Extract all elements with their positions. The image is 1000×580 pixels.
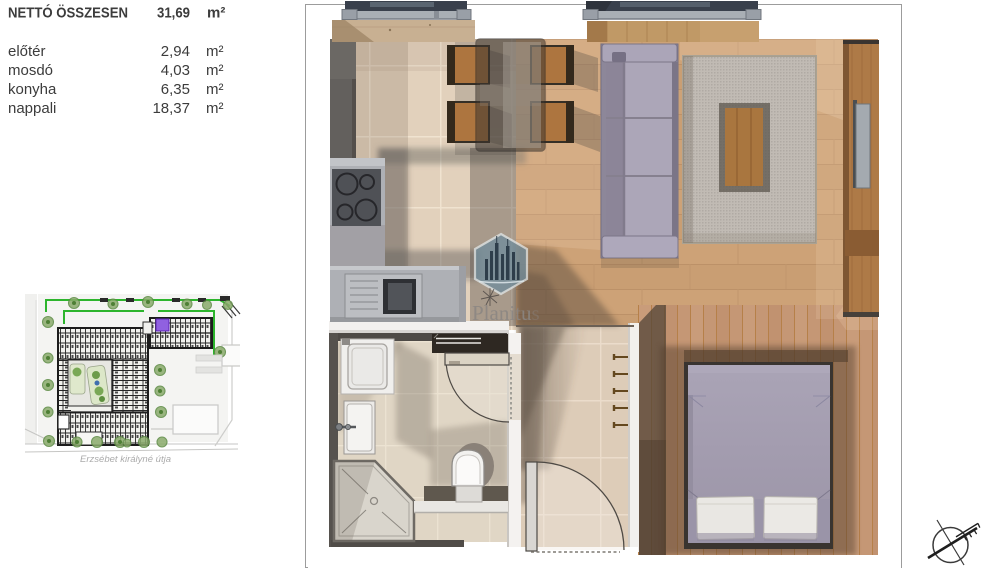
svg-text:m²: m²: [207, 5, 225, 22]
svg-text:18,37: 18,37: [152, 100, 190, 117]
svg-text:m²: m²: [206, 81, 224, 98]
svg-text:m²: m²: [206, 62, 224, 79]
svg-text:mosdó: mosdó: [8, 62, 53, 79]
svg-text:4,03: 4,03: [161, 62, 190, 79]
svg-text:31,69: 31,69: [157, 5, 190, 22]
svg-text:konyha: konyha: [8, 81, 57, 98]
svg-text:előtér: előtér: [8, 43, 46, 60]
svg-text:m²: m²: [206, 43, 224, 60]
svg-text:6,35: 6,35: [161, 81, 190, 98]
svg-text:Erzsébet királyné útja: Erzsébet királyné útja: [80, 454, 171, 465]
svg-text:Planitus: Planitus: [472, 301, 540, 325]
svg-text:nappali: nappali: [8, 100, 56, 117]
svg-text:NETTÓ ÖSSZESEN: NETTÓ ÖSSZESEN: [8, 4, 128, 22]
svg-text:2,94: 2,94: [161, 43, 190, 60]
svg-text:m²: m²: [206, 100, 224, 117]
